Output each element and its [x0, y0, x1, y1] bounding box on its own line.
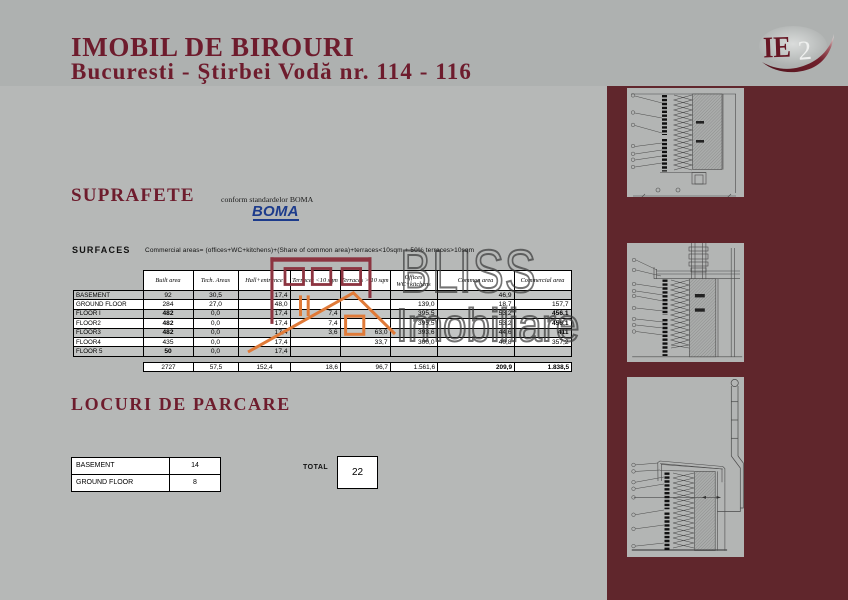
svg-text:2: 2 [797, 35, 813, 66]
svg-text:IE: IE [762, 31, 791, 65]
